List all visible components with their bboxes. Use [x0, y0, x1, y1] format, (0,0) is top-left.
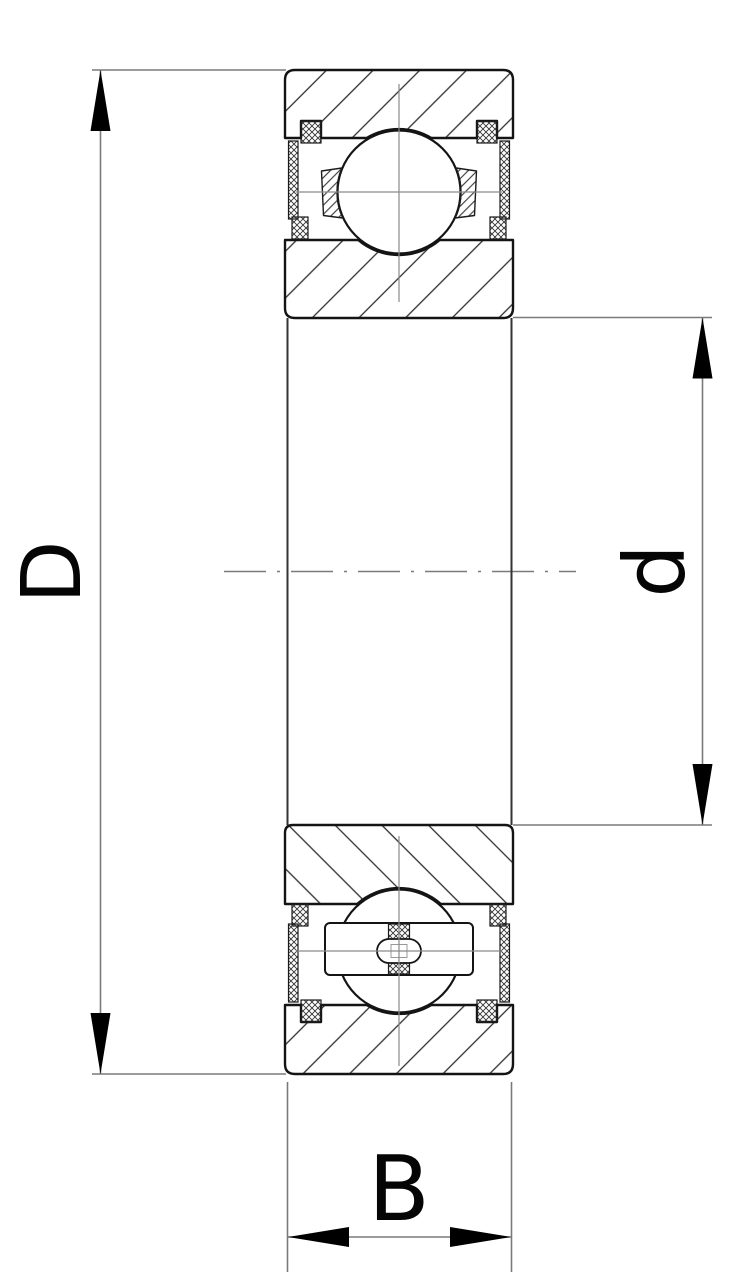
seal-anchor-outer-right-upper [477, 121, 497, 143]
seal-lip-right-lower [490, 904, 506, 926]
dimension-B-group: B [288, 1082, 512, 1272]
seal-left-upper [289, 141, 299, 219]
bearing-technical-drawing: D d B [0, 0, 743, 1280]
drawing-canvas: D d B [0, 0, 743, 1280]
seal-lip-right-upper [490, 217, 506, 239]
bearing-lower-section [285, 825, 513, 1074]
label-bore-diameter: d [606, 544, 704, 597]
seal-lip-left-upper [292, 217, 308, 239]
seal-left-lower [289, 924, 299, 1002]
seal-anchor-outer-left-lower [301, 1000, 321, 1022]
arrowhead-up-icon [91, 70, 111, 131]
seal-lip-left-lower [292, 904, 308, 926]
label-width: B [368, 1137, 430, 1242]
arrowhead-left-icon [288, 1227, 349, 1247]
seal-right-lower [500, 924, 510, 1002]
seal-right-upper [500, 141, 510, 219]
seal-anchor-outer-right-lower [477, 1000, 497, 1022]
bearing-upper-section [285, 70, 513, 318]
arrowhead-down-icon [693, 764, 713, 825]
seal-anchor-outer-left-upper [301, 121, 321, 143]
arrowhead-down-icon [91, 1013, 111, 1074]
arrowhead-up-icon [693, 318, 713, 379]
label-outer-diameter: D [5, 540, 100, 603]
dimension-d-group: d [513, 318, 713, 826]
arrowhead-right-icon [450, 1227, 511, 1247]
